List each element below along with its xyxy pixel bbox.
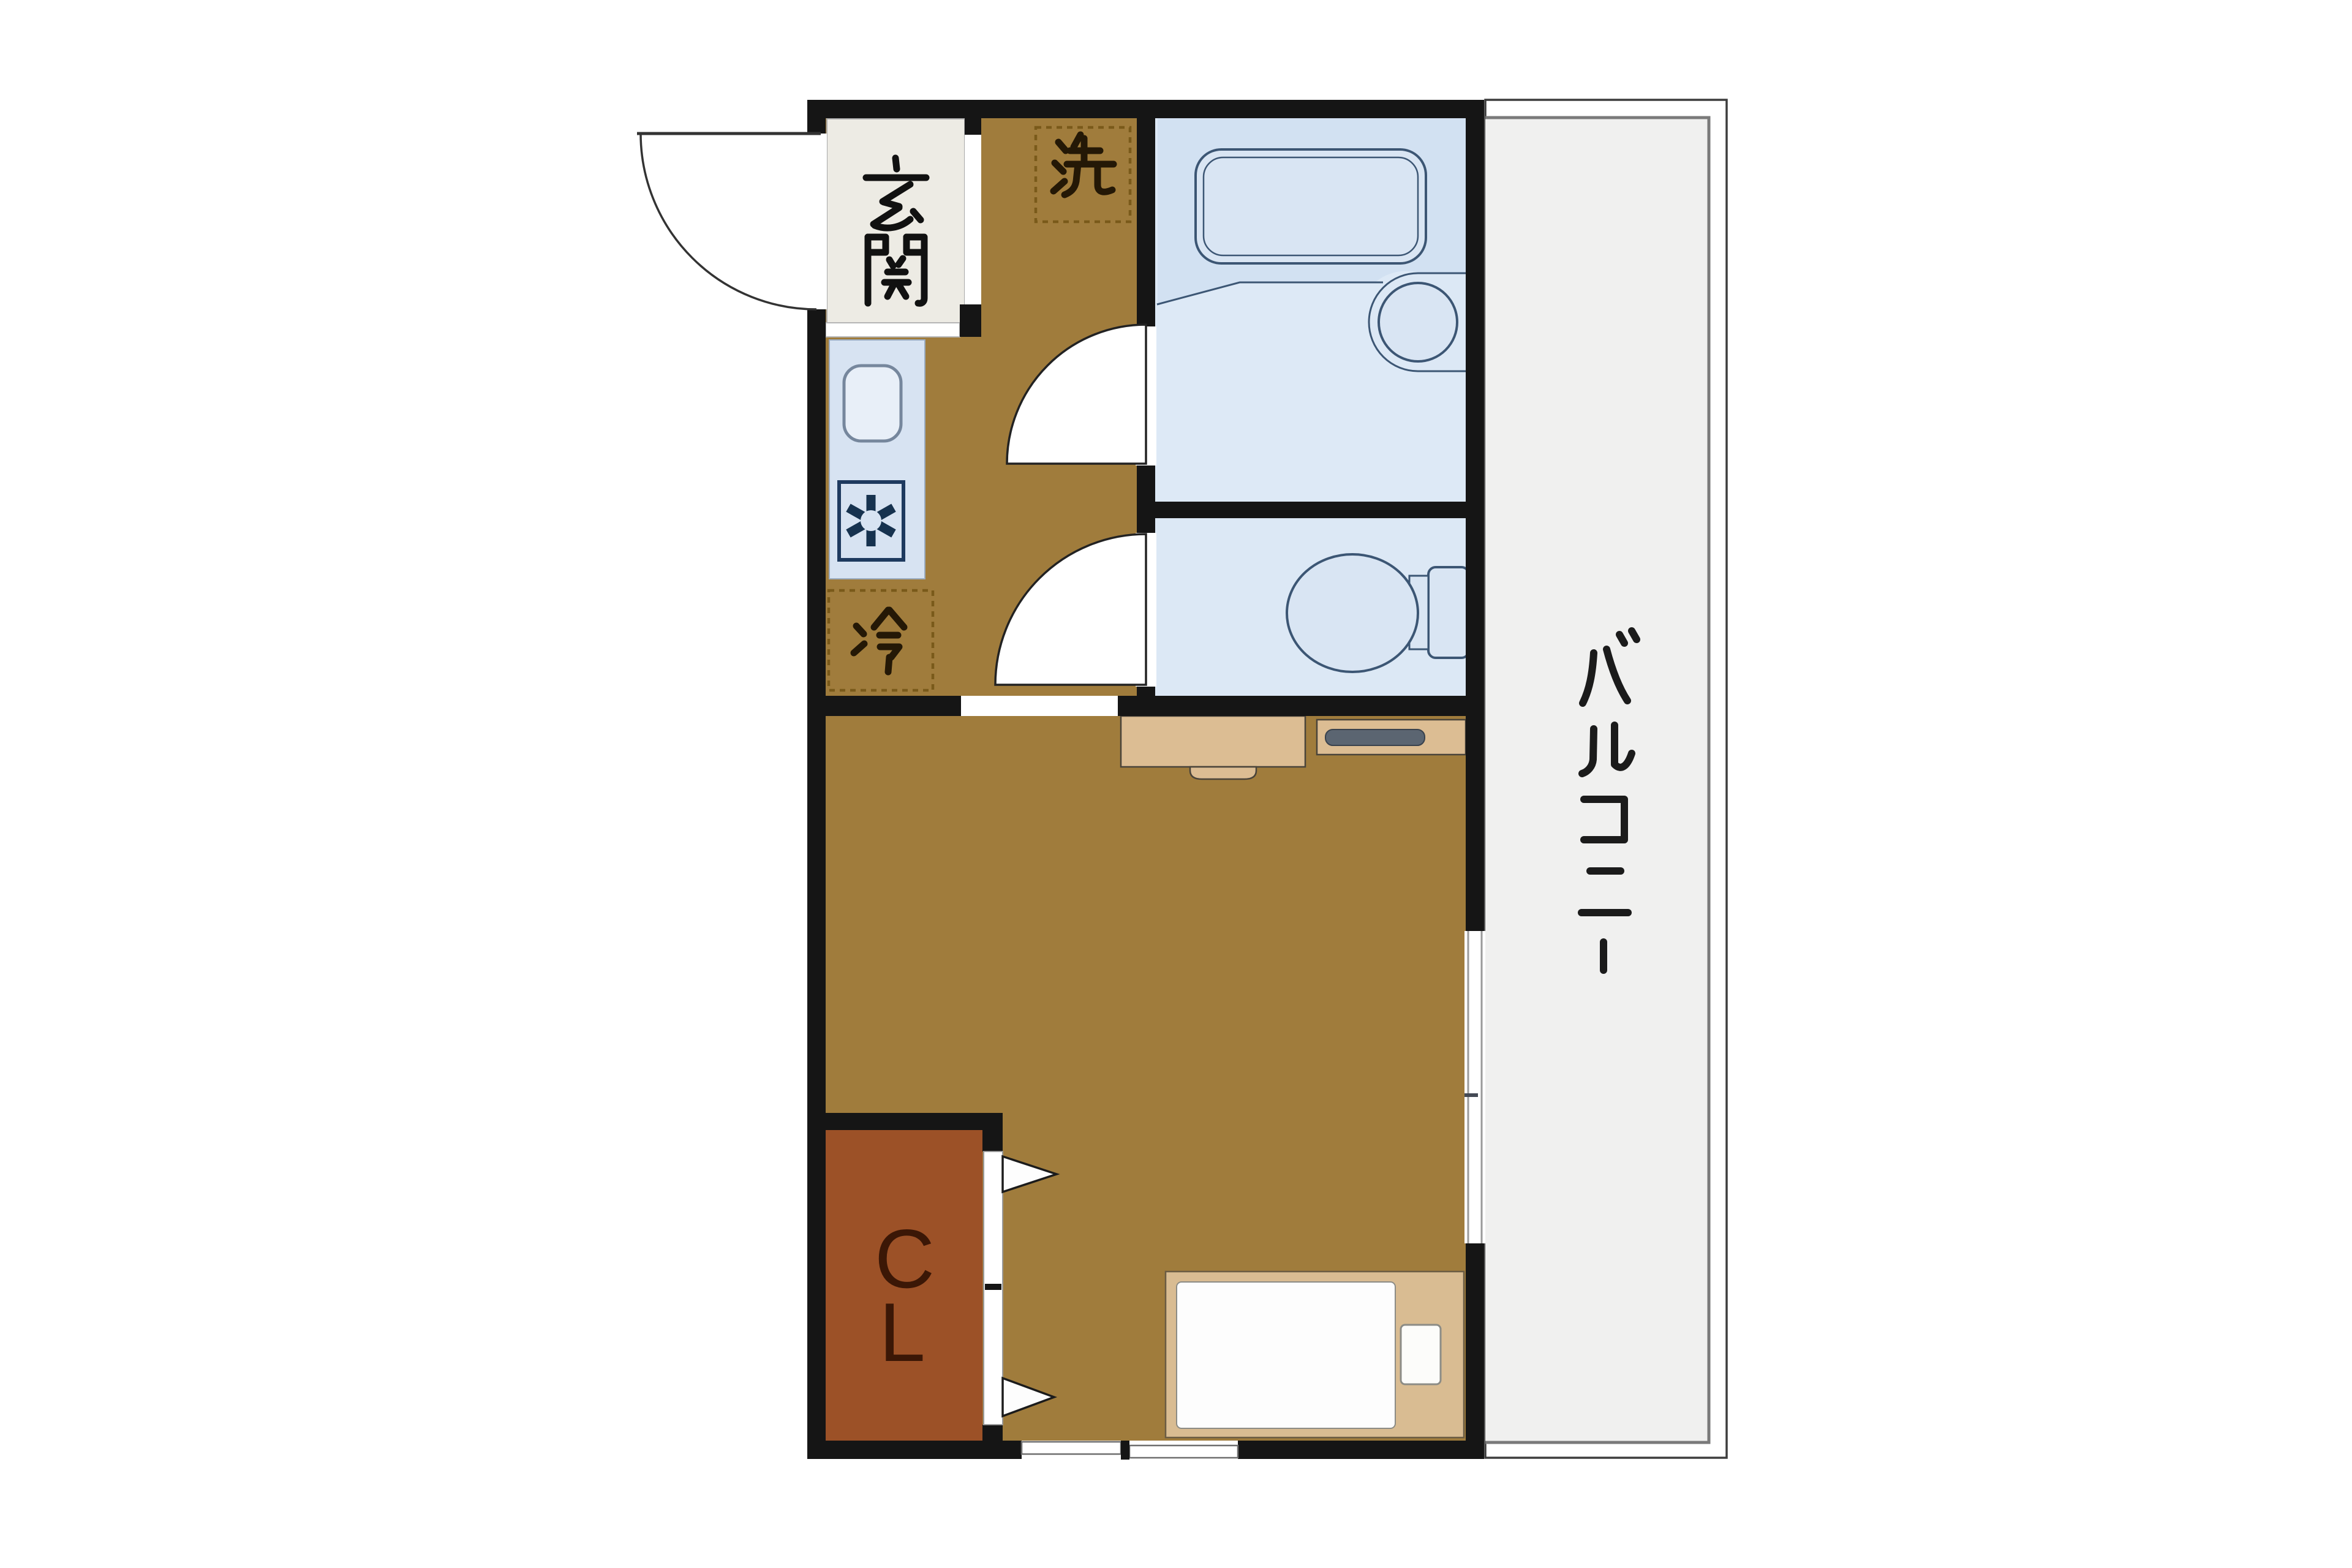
svg-text:L: L [879,1286,925,1379]
